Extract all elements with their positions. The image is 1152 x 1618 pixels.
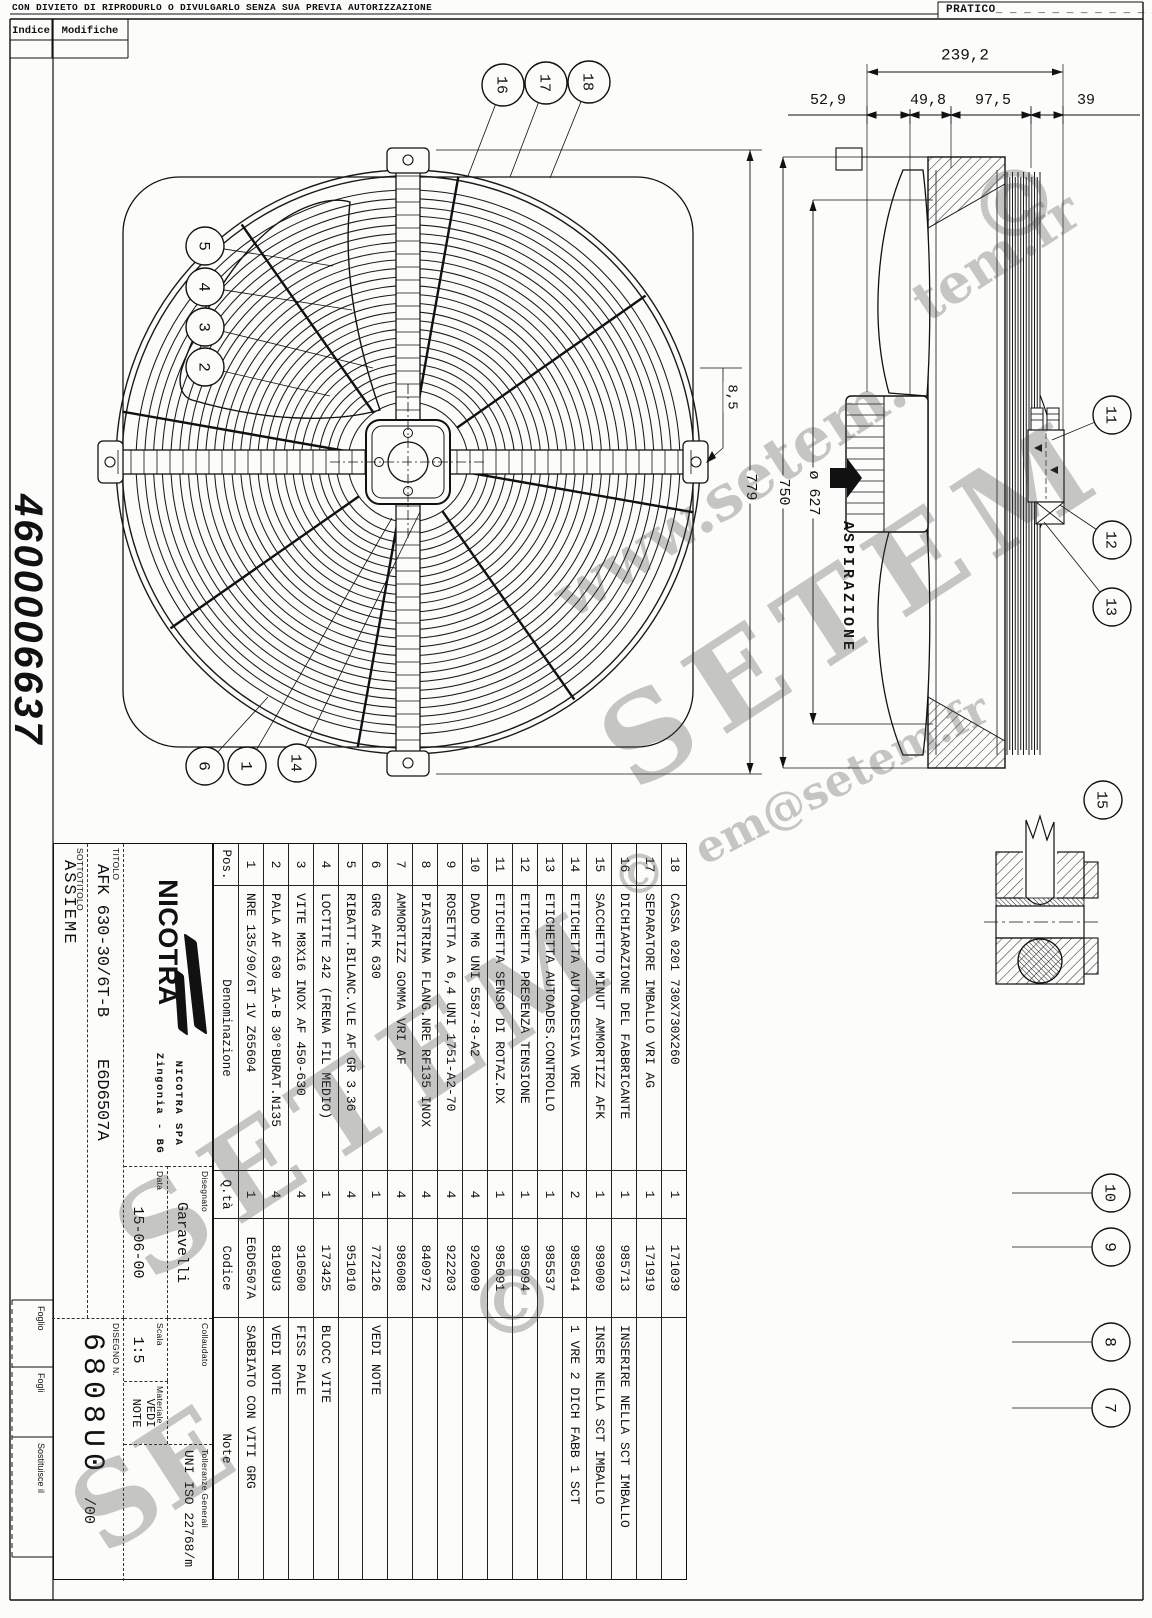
bom-row: 5RIBATT.BILANC.VLE AF GR 3.364951010 (339, 844, 364, 1579)
bom-row: 11ETICHETTA SENSO DI ROTAZ.DX1985091 (488, 844, 513, 1579)
bom-row: 18CASSA 0201 730X730X2601171039 (662, 844, 686, 1579)
damper-mount-detail (984, 816, 1102, 984)
bom-cell: 12 (513, 844, 537, 886)
bom-cell: 14 (563, 844, 587, 886)
bom-cell (438, 1318, 462, 1579)
bom-cell: Pos. (214, 844, 238, 886)
dim-arrow (951, 112, 960, 118)
fogli-label: Fogli (36, 1373, 46, 1393)
balloon-number: 1 (236, 761, 254, 771)
bom-cell (463, 1318, 487, 1579)
bom-cell: AMMORTIZZ GOMMA VRI AF (388, 886, 412, 1171)
dimension-label: 52,9 (807, 93, 849, 109)
bom-cell: FISS PALE (289, 1318, 313, 1579)
bom-cell: 922203 (438, 1219, 462, 1318)
bom-cell: 1 (314, 1171, 338, 1219)
bom-cell: GRG AFK 630 (363, 886, 387, 1171)
scala-label: Scala (155, 1323, 165, 1346)
bom-row: 14ETICHETTA AUTOADESIVA VRE29850141 VRE … (563, 844, 588, 1579)
bom-row: 8PIASTRINA FLANG.NRE RF135 INOX4840972 (413, 844, 438, 1579)
disegno-number: 6808U0 (75, 1333, 109, 1477)
bom-cell: Q.tà (214, 1171, 238, 1219)
mount-bracket (836, 148, 862, 170)
title-block: NICOTRA NICOTRA SPA Zingonia - BG Disegn… (53, 843, 213, 1580)
company-name: NICOTRA SPA (168, 1061, 187, 1147)
bom-cell: INSERIRE NELLA SCT IMBALLO (612, 1318, 636, 1579)
data-value: 15-06-00 (129, 1167, 146, 1318)
balloon-number: 3 (194, 322, 212, 332)
bom-cell: 2 (264, 844, 288, 886)
modifiche-header: Modifiche (52, 25, 128, 37)
bom-cell: 11 (488, 844, 512, 886)
guard-spoke (170, 496, 358, 628)
balloon-number: 13 (1102, 598, 1119, 616)
bom-cell: 1 (239, 1171, 263, 1219)
bom-cell: BLOCC VITE (314, 1318, 338, 1579)
bom-cell: 4 (264, 1171, 288, 1219)
bom-cell: ROSETTA A 6,4 UNI 1751-A2-70 (438, 886, 462, 1171)
bom-row: 10DADO M6 UNI 5587-8-A24920009 (463, 844, 488, 1579)
bom-cell: DICHIARAZIONE DEL FABBRICANTE (612, 886, 636, 1171)
bom-cell: 4 (413, 1171, 437, 1219)
materiale-cell: Materiale VEDI NOTE (124, 1381, 168, 1444)
guard-spoke (242, 224, 374, 412)
bom-cell: 171039 (662, 1219, 686, 1318)
sostituisce-label: Sostituisce il (36, 1443, 46, 1493)
dimension-label: 49,8 (907, 93, 949, 109)
bom-cell: 1 (513, 1171, 537, 1219)
disegno-label: DISEGNO N. (111, 1323, 121, 1376)
balloon-leader (223, 332, 373, 368)
bom-cell: SABBIATO CON VITI GRG (239, 1318, 263, 1579)
rotated-table-block: 18CASSA 0201 730X730X260117103917SEPARAT… (53, 843, 687, 1580)
copyright-disclaimer: CON DIVIETO DI RIPRODURLO O DIVULGARLO S… (12, 2, 432, 13)
tolleranze-cell: Tolleranze Generali UNI ISO 22768/m (124, 1444, 212, 1581)
bom-row: 13ETICHETTA AUTOADES.CONTROLLO1985537 (538, 844, 563, 1579)
balloon-leader (468, 105, 495, 176)
bom-cell: 18 (662, 844, 686, 886)
bom-cell: 985091 (488, 1219, 512, 1318)
bom-cell: 985094 (513, 1219, 537, 1318)
bom-cell: 986008 (388, 1219, 412, 1318)
bom-row: 7AMMORTIZZ GOMMA VRI AF4986008 (388, 844, 413, 1579)
bom-cell: 3 (289, 844, 313, 886)
bom-cell: 171919 (637, 1219, 661, 1318)
balloon-number: 4 (194, 282, 212, 292)
bom-cell: LOCTITE 242 (FRENA FIL MEDIO) (314, 886, 338, 1171)
dimension-label: 8,5 (724, 381, 739, 412)
balloon-number: 7 (1100, 1403, 1118, 1413)
bom-cell: 4 (438, 1171, 462, 1219)
balloon-number: 8 (1100, 1337, 1118, 1347)
bom-cell: 840972 (413, 1219, 437, 1318)
data-label: Data (155, 1171, 165, 1190)
company-address: NICOTRA SPA Zingonia - BG (124, 1041, 212, 1166)
balloon-number: 9 (1100, 1242, 1118, 1252)
tolleranze-value: UNI ISO 22768/m (181, 1450, 196, 1567)
bolt (1026, 816, 1054, 897)
bom-cell: Note (214, 1318, 238, 1579)
bom-cell: 4 (463, 1171, 487, 1219)
bom-cell: SACCHETTO MINUT AMMORTIZZ AFK (587, 886, 611, 1171)
bom-cell: 17 (637, 844, 661, 886)
disegnato-label: Disegnato (200, 1171, 210, 1212)
balloon-number: 12 (1102, 531, 1119, 549)
disegno-cell: DISEGNO N. 6808U0 /00 (52, 1318, 124, 1581)
titolo-label: TITOLO (111, 848, 121, 880)
bom-cell: 4 (289, 1171, 313, 1219)
balloon-number: 14 (287, 754, 304, 772)
bom-cell: DADO M6 UNI 5587-8-A2 (463, 886, 487, 1171)
casing-top-wall (928, 157, 1005, 228)
balloon-leader (510, 103, 538, 177)
logo-cell: NICOTRA NICOTRA SPA Zingonia - BG (124, 844, 212, 1166)
bom-cell: 910500 (289, 1219, 313, 1318)
bom-cell: 7 (388, 844, 412, 886)
bom-cell: 772126 (363, 1219, 387, 1318)
nicotra-logo: NICOTRA (124, 844, 212, 1041)
bom-cell: 1 (662, 1171, 686, 1219)
bom-row: 6GRG AFK 6301772126VEDI NOTE (363, 844, 388, 1579)
bom-row: 16DICHIARAZIONE DEL FABBRICANTE1985713IN… (612, 844, 637, 1579)
bom-cell: SEPARATORE IMBALLO VRI AG (637, 886, 661, 1171)
bom-cell: E6D6507A (239, 1219, 263, 1318)
bom-cell: 4 (314, 844, 338, 886)
bom-cell: CASSA 0201 730X730X260 (662, 886, 686, 1171)
company-city: Zingonia - BG (149, 1053, 168, 1154)
bom-cell: 1 (488, 1171, 512, 1219)
disegnato-cell: Disegnato Garavelli (168, 1166, 212, 1318)
balloon-number: 2 (194, 362, 212, 372)
blade-side-top (878, 170, 930, 396)
bom-cell: 1 (538, 1171, 562, 1219)
bom-cell: Codice (214, 1219, 238, 1318)
balloon-number: 10 (1101, 1184, 1118, 1202)
bom-cell: NRE 135/90/6T 1V Z65604 (239, 886, 263, 1171)
bom-row: 12ETICHETTA PRESENZA TENSIONE1985094 (513, 844, 538, 1579)
balloon-number: 11 (1102, 406, 1119, 424)
bom-cell: 6 (363, 844, 387, 886)
logo-swoosh-icon (184, 933, 207, 1035)
bom-cell: ETICHETTA SENSO DI ROTAZ.DX (488, 886, 512, 1171)
balloon-number: 17 (536, 74, 553, 92)
balloon-number: 5 (194, 241, 212, 251)
bom-cell: 9 (438, 844, 462, 886)
dimension-label: ø 627 (805, 467, 821, 518)
tolleranze-label: Tolleranze Generali (200, 1449, 210, 1528)
bom-cell (513, 1318, 537, 1579)
sottotitolo-cell: SOTTOTITOLO ASSIEME (52, 844, 88, 1318)
fan-hub (330, 384, 486, 540)
bom-cell (637, 1318, 661, 1579)
dimension-label: 39 (1074, 93, 1098, 109)
balloon-leader (224, 371, 330, 396)
guard-spoke (442, 511, 574, 699)
titolo-cell: TITOLO AFK 630-30/6T-B E6D6507A (88, 844, 124, 1318)
bom-cell: ETICHETTA PRESENZA TENSIONE (513, 886, 537, 1171)
materiale-value: VEDI NOTE (129, 1382, 157, 1444)
balloon-leader (1060, 505, 1096, 529)
bom-cell: 8 (413, 844, 437, 886)
bom-cell: PIASTRINA FLANG.NRE RF135 INOX (413, 886, 437, 1171)
bom-cell: 1 (637, 1171, 661, 1219)
bom-cell: 16 (612, 844, 636, 886)
collaudato-label: Collaudato (200, 1323, 210, 1367)
bom-table: 18CASSA 0201 730X730X260117103917SEPARAT… (213, 843, 687, 1580)
dimension-label: 779 (742, 470, 758, 503)
balloon-number: 16 (493, 76, 510, 94)
bom-cell: VITE M8X16 INOX AF 450-630 (289, 886, 313, 1171)
bom-cell (413, 1318, 437, 1579)
logo-text: NICOTRA (153, 879, 184, 1006)
bom-row: 17SEPARATORE IMBALLO VRI AG1171919 (637, 844, 662, 1579)
bom-cell: 4 (339, 1171, 363, 1219)
casing-side (928, 157, 1005, 768)
bom-cell (538, 1318, 562, 1579)
bom-cell: 173425 (314, 1219, 338, 1318)
bom-cell: 1 (363, 1171, 387, 1219)
dim-arrow (1031, 112, 1040, 118)
dim-arrow (910, 112, 919, 118)
bom-cell: RIBATT.BILANC.VLE AF GR 3.36 (339, 886, 363, 1171)
bom-cell: Denominazione (214, 886, 238, 1171)
bom-cell: 920009 (463, 1219, 487, 1318)
foglio-label: Foglio (36, 1306, 46, 1331)
bom-cell: 985713 (612, 1219, 636, 1318)
bom-cell (488, 1318, 512, 1579)
bom-cell: 1 VRE 2 DICH FABB 1 SCT (563, 1318, 587, 1579)
drawing-number-side: 4600006637 (5, 494, 50, 746)
bom-cell: 985537 (538, 1219, 562, 1318)
bom-cell (339, 1318, 363, 1579)
guard-spoke (457, 296, 645, 428)
drawing-sheet: 123456789101112131415161718 CON DIVIETO … (0, 0, 1152, 1618)
pratico-field: PRATICO_ _ _ _ _ _ _ _ _ _ _ _ (946, 4, 1152, 16)
bom-cell (388, 1318, 412, 1579)
bom-cell: 5 (339, 844, 363, 886)
data-cell: Data 15-06-00 (124, 1166, 168, 1318)
terminal-box (1028, 408, 1064, 524)
bom-cell: 985014 (563, 1219, 587, 1318)
bom-cell: 989009 (587, 1219, 611, 1318)
scala-cell: Scala 1:5 (124, 1318, 168, 1381)
bom-row: 15SACCHETTO MINUT AMMORTIZZ AFK1989009IN… (587, 844, 612, 1579)
titolo-value: AFK 630-30/6T-B (92, 864, 111, 1017)
dim-arrow (867, 112, 876, 118)
bom-cell: ETICHETTA AUTOADESIVA VRE (563, 886, 587, 1171)
bom-row: 4LOCTITE 242 (FRENA FIL MEDIO)1173425BLO… (314, 844, 339, 1579)
sottotitolo-value: ASSIEME (59, 860, 78, 945)
motor (846, 396, 928, 532)
dimension-label: 750 (775, 475, 791, 508)
fan-side-view (836, 148, 1064, 768)
bom-cell (662, 1318, 686, 1579)
bom-row: 9ROSETTA A 6,4 UNI 1751-A2-704922203 (438, 844, 463, 1579)
bom-cell: 1 (587, 1171, 611, 1219)
bom-cell: 951010 (339, 1219, 363, 1318)
rubber-damper (1018, 939, 1062, 983)
casing-bottom-wall (928, 697, 1005, 768)
bom-header-row: Pos.DenominazioneQ.tàCodiceNote (214, 844, 239, 1579)
bom-cell: 10 (463, 844, 487, 886)
titolo-code: E6D6507A (92, 1059, 111, 1141)
bom-cell: 13 (538, 844, 562, 886)
bom-cell: INSER NELLA SCT IMBALLO (587, 1318, 611, 1579)
balloon-number: 18 (579, 73, 596, 91)
bom-row: 3VITE M8X16 INOX AF 450-6304910500FISS P… (289, 844, 314, 1579)
collaudato-cell: Collaudato (168, 1318, 212, 1444)
bom-cell: 1 (612, 1171, 636, 1219)
dimension-label: 97,5 (972, 93, 1014, 109)
bom-cell: VEDI NOTE (264, 1318, 288, 1579)
bom-cell: ETICHETTA AUTOADES.CONTROLLO (538, 886, 562, 1171)
disegnato-value: Garavelli (173, 1167, 190, 1318)
balloon-leader (550, 101, 581, 178)
bom-cell: 1 (239, 844, 263, 886)
blade-side-bottom (878, 529, 930, 755)
dimension-label: 239,2 (938, 48, 992, 65)
bom-cell: 8109U3 (264, 1219, 288, 1318)
balloon-leader (1044, 522, 1100, 592)
bom-row: 2PALA AF 630 1A-B 30°BURAT.N13548109U3VE… (264, 844, 289, 1579)
indice-header: Indice (10, 25, 52, 37)
bom-cell: 15 (587, 844, 611, 886)
bom-cell: PALA AF 630 1A-B 30°BURAT.N135 (264, 886, 288, 1171)
scala-value: 1:5 (129, 1319, 146, 1381)
aspirazione-label: ASPIRAZIONE (839, 521, 856, 653)
dim-arrow (1054, 112, 1063, 118)
balloon-number: 15 (1093, 791, 1110, 809)
bom-cell: VEDI NOTE (363, 1318, 387, 1579)
disegno-revision: /00 (80, 1497, 97, 1524)
bom-row: 1NRE 135/90/6T 1V Z656041E6D6507ASABBIAT… (239, 844, 264, 1579)
bom-cell: 2 (563, 1171, 587, 1219)
bom-cell: 4 (388, 1171, 412, 1219)
balloon-number: 6 (194, 761, 212, 771)
